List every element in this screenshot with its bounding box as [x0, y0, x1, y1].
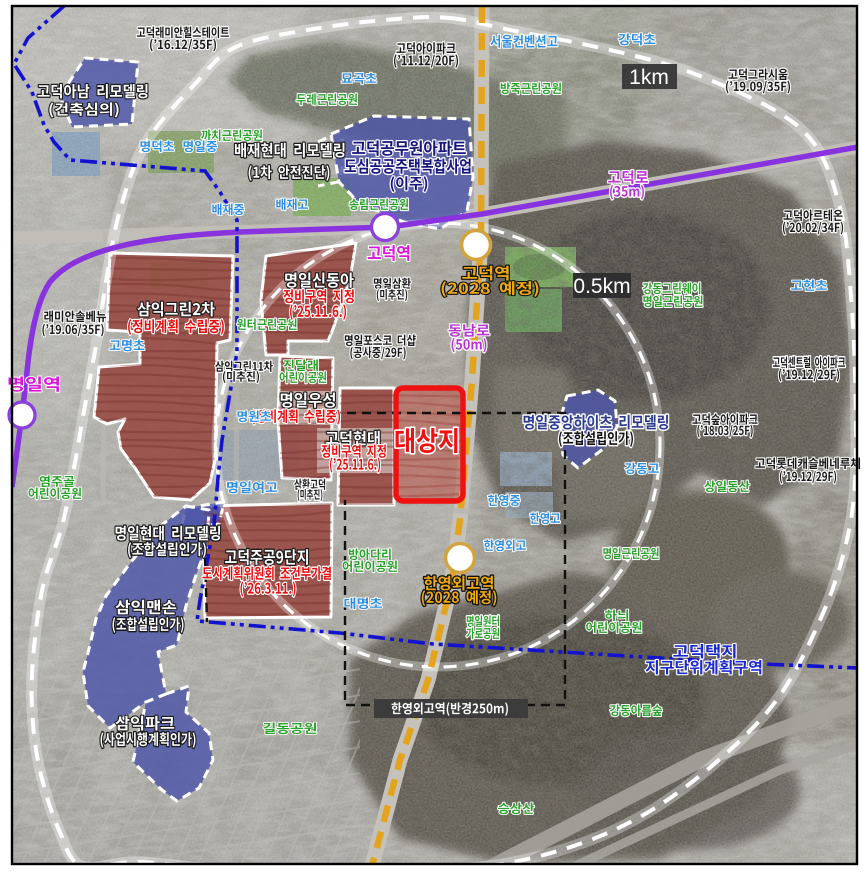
svg-text:1km: 1km	[629, 66, 669, 89]
svg-text:0.5km: 0.5km	[573, 275, 630, 298]
